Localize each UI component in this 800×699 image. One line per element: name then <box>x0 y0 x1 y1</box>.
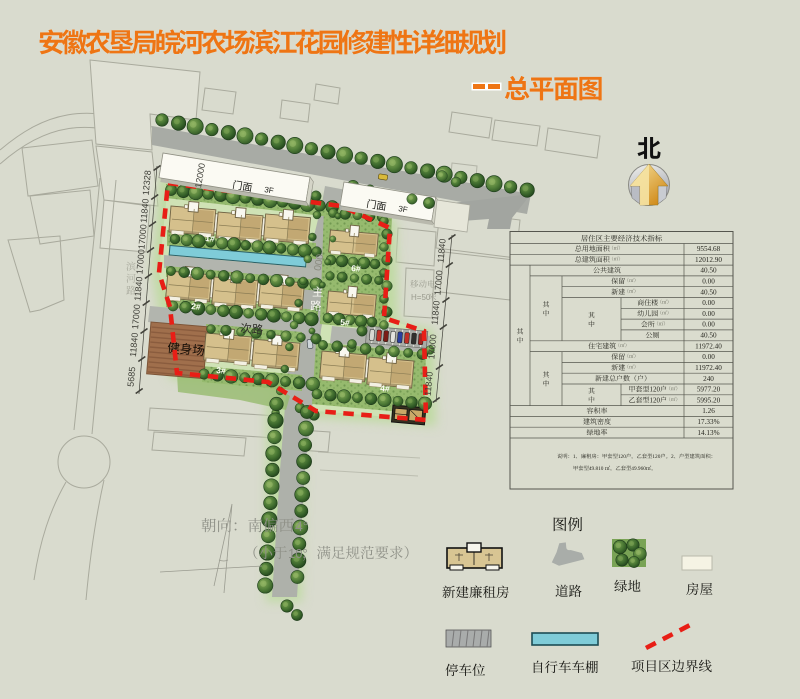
svg-text:40.50: 40.50 <box>700 332 717 340</box>
svg-text:17.33%: 17.33% <box>697 418 719 426</box>
svg-text:120: 120 <box>650 396 661 404</box>
svg-text:5#: 5# <box>340 317 351 328</box>
svg-text:120: 120 <box>652 454 660 460</box>
svg-text:4#: 4# <box>380 383 391 394</box>
svg-text:4°: 4° <box>295 518 308 534</box>
svg-text:11972.40: 11972.40 <box>695 342 722 350</box>
svg-text:0.00: 0.00 <box>702 310 715 318</box>
svg-text:11840: 11840 <box>139 198 151 223</box>
svg-text:0.00: 0.00 <box>702 299 715 307</box>
svg-text:240: 240 <box>703 375 714 383</box>
svg-text:40.50: 40.50 <box>700 267 717 275</box>
svg-text:12012.90: 12012.90 <box>695 256 722 264</box>
svg-text:11840: 11840 <box>436 238 448 263</box>
svg-text:1#: 1# <box>205 233 216 244</box>
svg-text:1.26: 1.26 <box>702 407 715 415</box>
svg-text:0.00: 0.00 <box>702 278 715 286</box>
svg-text:11840: 11840 <box>423 371 435 396</box>
svg-text:2#: 2# <box>191 301 202 312</box>
svg-text:5995.20: 5995.20 <box>697 396 721 404</box>
svg-text:0.00: 0.00 <box>702 353 715 361</box>
svg-text:11840: 11840 <box>128 332 140 357</box>
svg-text:120: 120 <box>618 454 626 460</box>
svg-text:1: 1 <box>573 454 576 460</box>
svg-text:9554.68: 9554.68 <box>697 245 721 253</box>
svg-text:3F: 3F <box>264 185 275 195</box>
svg-text:3#: 3# <box>216 365 227 376</box>
svg-text:5685: 5685 <box>126 366 138 387</box>
svg-text:49.960: 49.960 <box>631 466 646 472</box>
svg-text:11840: 11840 <box>430 300 442 325</box>
svg-text:0.00: 0.00 <box>702 321 715 329</box>
svg-text:3F: 3F <box>398 204 409 214</box>
svg-text:6#: 6# <box>351 263 362 274</box>
svg-text:14.13%: 14.13% <box>697 429 719 437</box>
svg-text:5977.20: 5977.20 <box>697 386 721 394</box>
svg-text:11972.40: 11972.40 <box>695 364 722 372</box>
svg-text:49.810: 49.810 <box>589 466 604 472</box>
svg-text:120: 120 <box>650 386 661 394</box>
svg-text:H=50: H=50 <box>411 293 431 302</box>
svg-text:2: 2 <box>671 454 674 460</box>
svg-text:40.50: 40.50 <box>700 288 717 296</box>
